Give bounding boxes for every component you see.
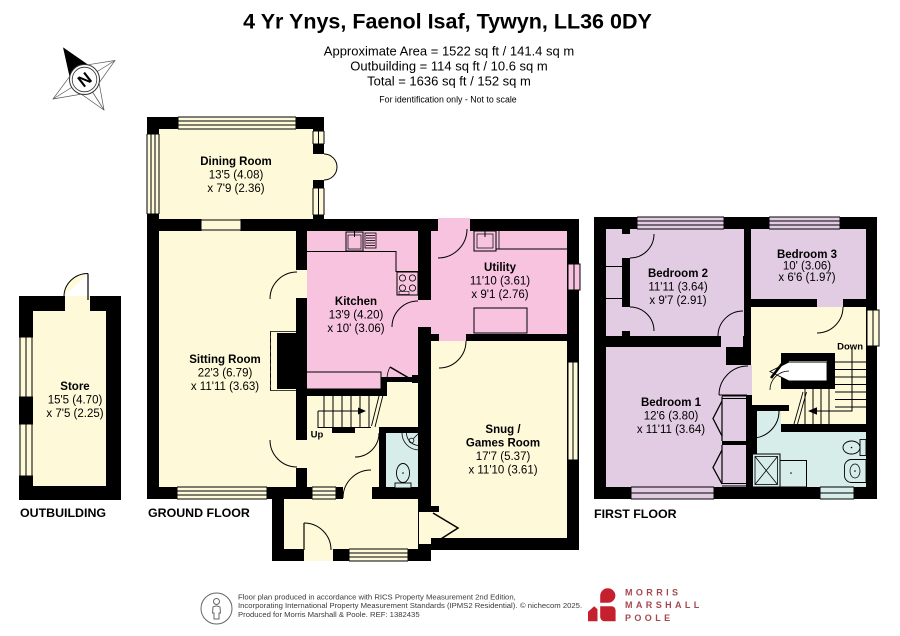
svg-text:x 11'10 (3.61): x 11'10 (3.61)	[468, 465, 537, 477]
svg-text:13'9 (4.20): 13'9 (4.20)	[329, 310, 384, 322]
svg-text:Bedroom 3: Bedroom 3	[777, 249, 837, 261]
svg-text:x 11'11 (3.63): x 11'11 (3.63)	[191, 381, 259, 393]
svg-text:11'10 (3.61): 11'10 (3.61)	[470, 276, 530, 288]
svg-text:x 11'11 (3.64): x 11'11 (3.64)	[637, 424, 705, 436]
svg-text:13'5 (4.08): 13'5 (4.08)	[209, 170, 264, 182]
svg-text:22'3 (6.79): 22'3 (6.79)	[198, 368, 253, 380]
svg-text:OUTBUILDING: OUTBUILDING	[20, 506, 106, 520]
svg-text:10' (3.06): 10' (3.06)	[783, 261, 831, 273]
svg-text:Kitchen: Kitchen	[335, 296, 377, 308]
svg-text:Outbuilding = 114 sq ft / 10.6: Outbuilding = 114 sq ft / 10.6 sq m	[350, 59, 547, 74]
svg-text:x 10' (3.06): x 10' (3.06)	[327, 323, 384, 335]
svg-text:x 7'5 (2.25): x 7'5 (2.25)	[46, 408, 103, 420]
svg-text:Dining Room: Dining Room	[200, 156, 272, 168]
svg-text:x 9'7 (2.91): x 9'7 (2.91)	[649, 295, 706, 307]
svg-text:Produced for Morris Marshall &: Produced for Morris Marshall & Poole. RE…	[238, 610, 420, 619]
svg-text:Approximate Area = 1522 sq ft: Approximate Area = 1522 sq ft / 141.4 sq…	[324, 44, 574, 59]
svg-text:Bedroom 2: Bedroom 2	[648, 268, 708, 280]
svg-text:Incorporating International Pr: Incorporating International Property Mea…	[238, 601, 517, 610]
svg-text:Bedroom 1: Bedroom 1	[641, 397, 702, 409]
svg-text:12'6 (3.80): 12'6 (3.80)	[644, 411, 699, 423]
svg-text:Utility: Utility	[484, 262, 517, 274]
svg-text:17'7 (5.37): 17'7 (5.37)	[476, 451, 531, 463]
svg-text:Up: Up	[311, 430, 324, 441]
svg-text:For identification only - Not: For identification only - Not to scale	[379, 95, 516, 105]
svg-text:FIRST FLOOR: FIRST FLOOR	[594, 507, 677, 521]
svg-text:x 7'9 (2.36): x 7'9 (2.36)	[207, 183, 264, 195]
svg-text:x 6'6 (1.97): x 6'6 (1.97)	[778, 272, 835, 284]
svg-text:MARSHALL: MARSHALL	[625, 600, 703, 610]
svg-text:4 Yr Ynys, Faenol Isaf, Tywyn,: 4 Yr Ynys, Faenol Isaf, Tywyn, LL36 0DY	[243, 10, 652, 34]
svg-text:11'11 (3.64): 11'11 (3.64)	[648, 282, 707, 294]
svg-text:Total = 1636 sq ft / 152 sq m: Total = 1636 sq ft / 152 sq m	[367, 74, 531, 89]
svg-text:Floor plan produced in accorda: Floor plan produced in accordance with R…	[238, 593, 516, 602]
svg-text:MORRIS: MORRIS	[625, 588, 681, 598]
svg-text:© nichecom 2025.: © nichecom 2025.	[520, 601, 582, 610]
svg-text:Sitting Room: Sitting Room	[189, 354, 261, 366]
svg-text:GROUND FLOOR: GROUND FLOOR	[148, 506, 250, 520]
svg-text:Snug /: Snug /	[485, 424, 521, 436]
svg-text:Store: Store	[60, 381, 89, 393]
svg-text:15'5 (4.70): 15'5 (4.70)	[48, 395, 103, 407]
svg-text:x 9'1 (2.76): x 9'1 (2.76)	[471, 289, 528, 301]
svg-text:Down: Down	[837, 342, 863, 353]
svg-text:Games Room: Games Room	[466, 438, 540, 450]
svg-text:POOLE: POOLE	[625, 613, 674, 623]
